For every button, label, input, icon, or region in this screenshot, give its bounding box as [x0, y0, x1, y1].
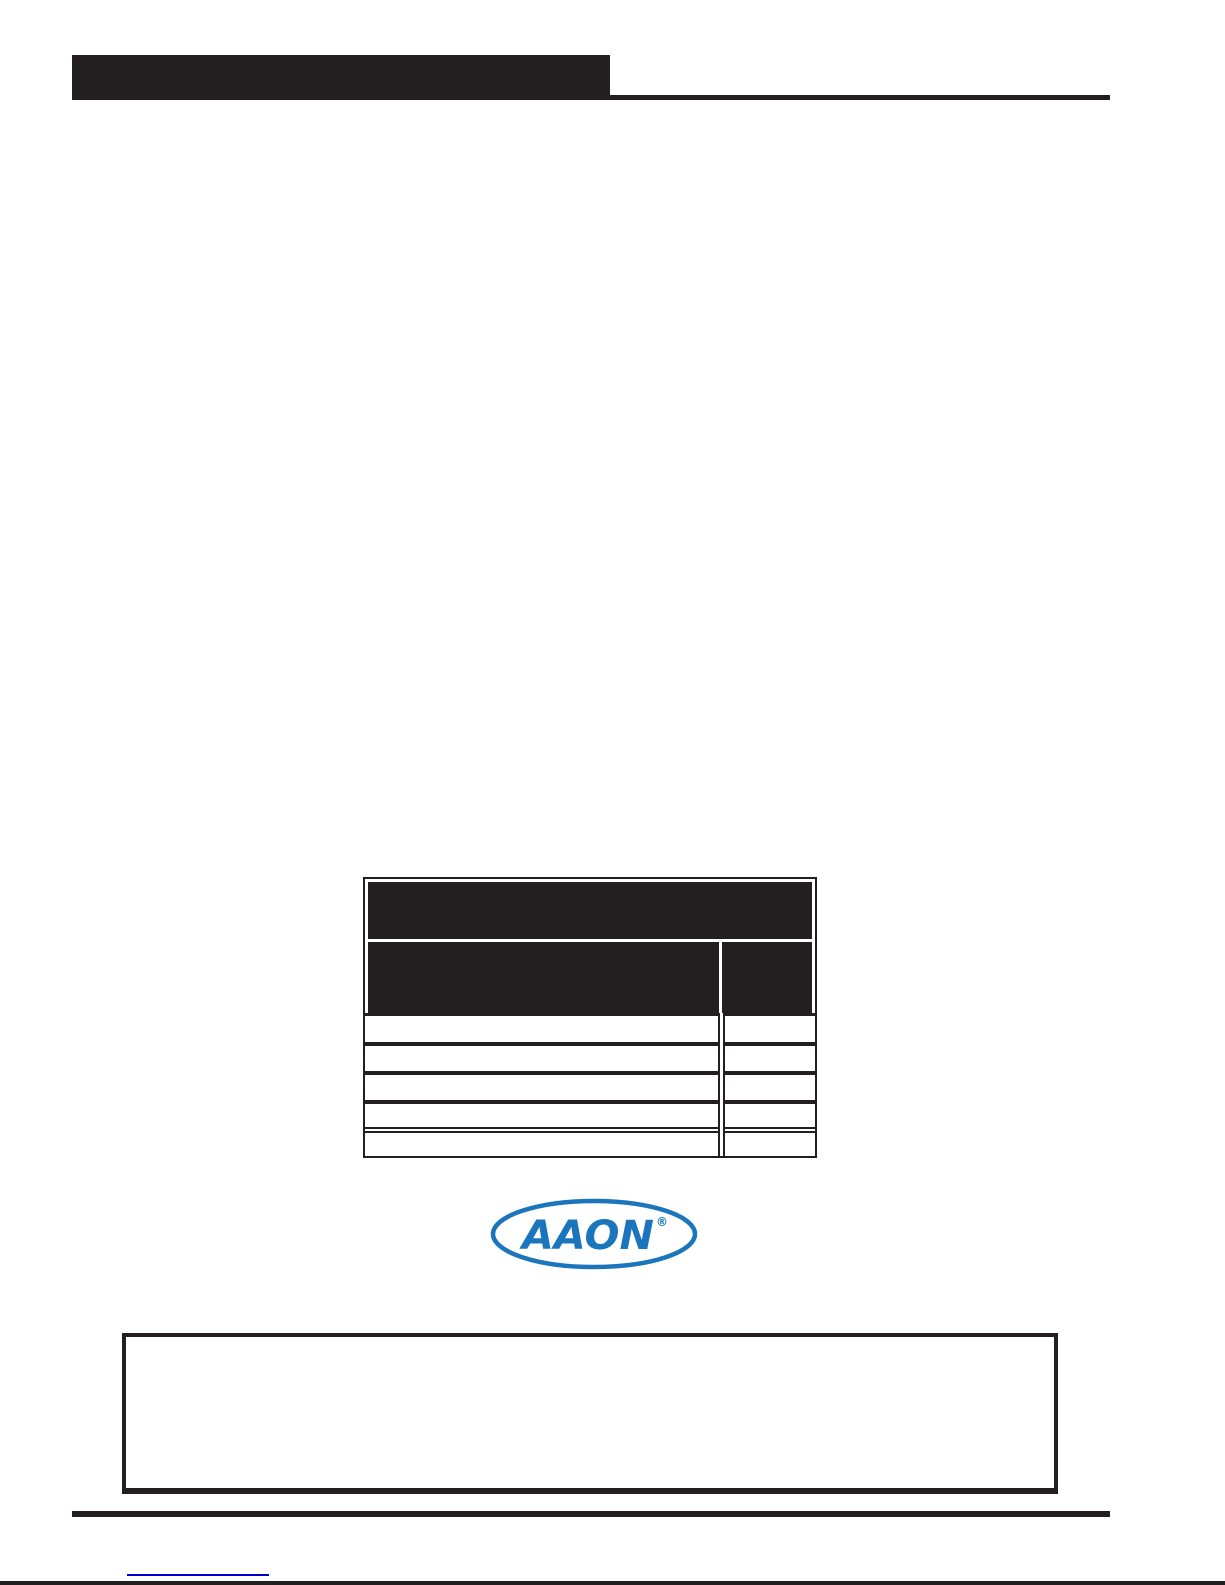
logo-text: AAON: [519, 1213, 654, 1259]
table-cell: [723, 1104, 815, 1127]
table-cell: [723, 1046, 815, 1071]
table-cell: [723, 1016, 815, 1042]
aaon-logo-graphic: AAON ®: [488, 1196, 700, 1272]
table-cell: [723, 1133, 815, 1156]
page-header-bar: [72, 55, 610, 100]
page-bottom-edge: [0, 1581, 1225, 1585]
table-row: [365, 1016, 815, 1042]
footer-rule: [72, 1511, 1110, 1517]
table-row: [365, 1046, 815, 1071]
table-row: [365, 1133, 815, 1156]
table-cell: [365, 1046, 720, 1071]
table-column-header-description: [368, 942, 719, 1013]
table-body: [365, 1013, 815, 1156]
table-row: [365, 1104, 815, 1127]
table-cell: [365, 1133, 720, 1156]
table-column-header-value: [722, 942, 812, 1013]
footer-link[interactable]: [127, 1564, 269, 1576]
table-cell: [365, 1075, 720, 1100]
table-cell: [365, 1016, 720, 1042]
table-cell: [723, 1075, 815, 1100]
aaon-logo: AAON ®: [488, 1196, 700, 1272]
table-cell: [365, 1104, 720, 1127]
document-page: AAON ®: [0, 0, 1225, 1585]
table-header-title: [368, 882, 812, 939]
notice-box: [122, 1333, 1058, 1494]
registered-trademark-icon: ®: [656, 1215, 668, 1229]
table-row: [365, 1075, 815, 1100]
spec-table: [363, 877, 817, 1158]
